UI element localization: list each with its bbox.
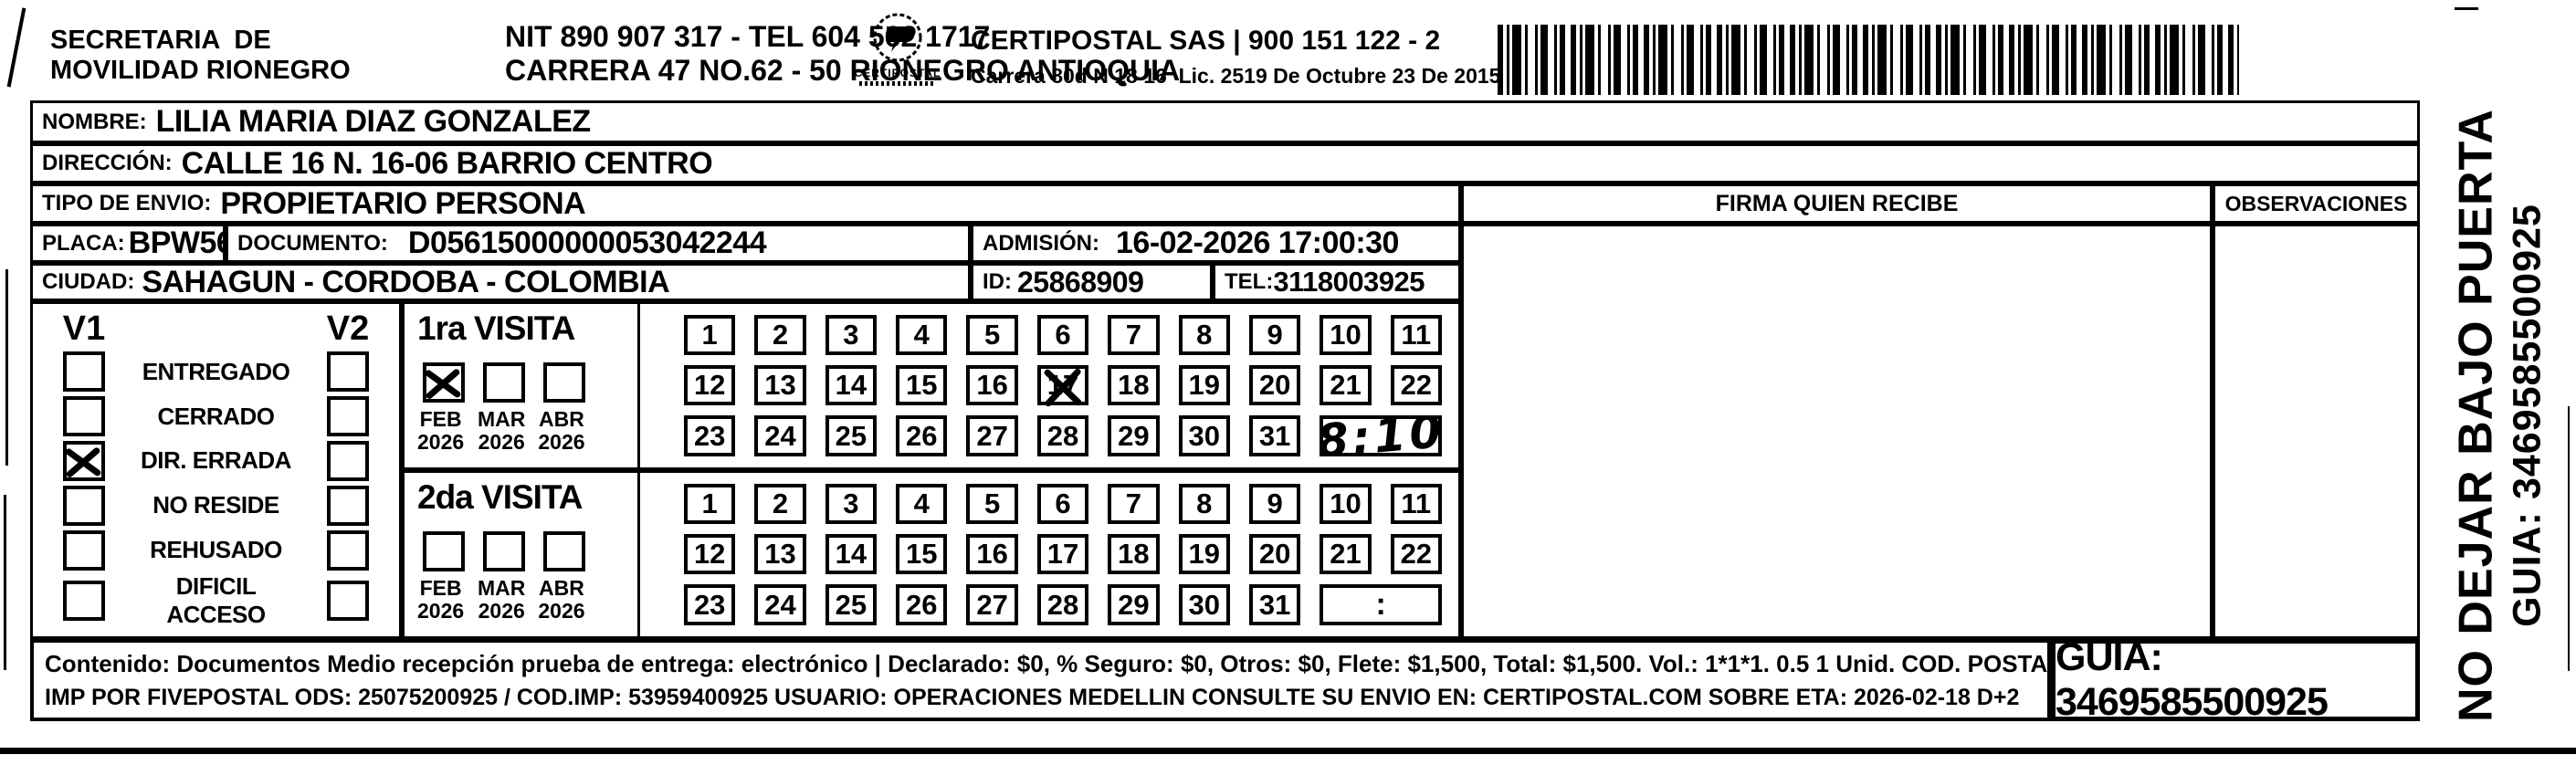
observaciones-header-label: OBSERVACIONES xyxy=(2225,192,2408,216)
month-label-feb-2026: FEB2026 xyxy=(417,577,464,623)
checkbox-month-abr-2026 xyxy=(543,362,585,403)
day-cell-3: 3 xyxy=(825,484,877,524)
day-cell-8: 8 xyxy=(1179,484,1230,524)
scan-mark-left-2 xyxy=(4,495,6,670)
tipo-envio-label: TIPO DE ENVIO: xyxy=(42,191,211,216)
firma-signature-area xyxy=(1461,224,2213,639)
day-cell-31: 31 xyxy=(1249,584,1300,625)
checkbox-v1-no-reside xyxy=(63,486,105,526)
month-year: 2026 xyxy=(417,600,464,623)
documento-value: D05615000000053042244 xyxy=(408,225,766,261)
ciudad-cell: CIUDAD: SAHAGUN - CORDOBA - COLOMBIA xyxy=(30,263,971,301)
month-year: 2026 xyxy=(478,600,525,623)
ciudad-value: SAHAGUN - CORDOBA - COLOMBIA xyxy=(142,265,669,300)
day-cell-14: 14 xyxy=(825,365,877,405)
v1-checkbox-wrap xyxy=(42,581,126,621)
status-label-no-reside: NO RESIDE xyxy=(126,491,306,519)
day-cell-23: 23 xyxy=(684,584,735,625)
side-vertical-text: NO DEJAR BAJO PUERTA GUIA: 3469585500925 xyxy=(2422,100,2576,730)
day-cell-12: 12 xyxy=(684,534,735,574)
month-option-abr-2026: ABR2026 xyxy=(538,531,585,623)
second-visit-title: 2da VISITA xyxy=(417,478,637,517)
handwritten-time-value: 8:10 xyxy=(1320,415,1442,456)
day-cell-9: 9 xyxy=(1249,484,1300,524)
day-cell-24: 24 xyxy=(754,584,805,625)
day-cell-8: 8 xyxy=(1179,315,1230,355)
documento-cell: DOCUMENTO: D05615000000053042244 xyxy=(226,224,971,263)
logo-tagline-squiggle xyxy=(859,81,936,86)
status-option-dir-errada: DIR. ERRADA xyxy=(42,439,390,484)
day-cell-20: 20 xyxy=(1249,534,1300,574)
day-cell-2: 2 xyxy=(754,484,805,524)
day-cell-22: 22 xyxy=(1391,534,1442,574)
day-cell-7: 7 xyxy=(1108,315,1159,355)
day-cell-4: 4 xyxy=(896,315,947,355)
checkbox-v1-dificil-acceso xyxy=(63,581,105,621)
first-visit-months: FEB2026MAR2026ABR2026 xyxy=(417,362,637,454)
checkbox-month-mar-2026 xyxy=(483,531,525,571)
guia-box-value: GUIA: 3469585500925 xyxy=(2056,639,2415,721)
day-cell-5: 5 xyxy=(966,484,1017,524)
second-visit-day-grid: 1234567891011121314151617181920212223242… xyxy=(640,473,1458,636)
v1-checkbox-wrap xyxy=(42,486,126,526)
no-dejar-warning: NO DEJAR BAJO PUERTA xyxy=(2448,109,2503,722)
sender-block: SECRETARIA DE MOVILIDAD RIONEGRO xyxy=(50,26,351,86)
sender-line-2: MOVILIDAD RIONEGRO xyxy=(50,56,351,86)
checkbox-v2-dir-errada xyxy=(327,441,369,481)
certipostal-logo-icon xyxy=(869,11,926,66)
v1-checkbox-wrap xyxy=(42,530,126,571)
day-cell-22: 22 xyxy=(1391,365,1442,405)
month-name: MAR xyxy=(478,577,525,600)
month-year: 2026 xyxy=(417,431,464,454)
status-option-entregado: ENTREGADO xyxy=(42,350,390,394)
contenido-cell: Contenido: Documentos Medio recepción pr… xyxy=(30,639,2051,721)
status-header-row: V1 V2 xyxy=(42,308,390,350)
checkbox-v1-cerrado xyxy=(63,396,105,436)
day-cell-27: 27 xyxy=(966,415,1017,456)
nombre-row: NOMBRE: LILIA MARIA DIAZ GONZALEZ xyxy=(30,100,2420,143)
month-year: 2026 xyxy=(478,431,525,454)
status-option-rehusado: REHUSADO xyxy=(42,528,390,572)
second-visit-months: FEB2026MAR2026ABR2026 xyxy=(417,531,637,623)
day-cell-2: 2 xyxy=(754,315,805,355)
day-cell-16: 16 xyxy=(966,534,1017,574)
checkbox-v1-entregado xyxy=(63,351,105,392)
checkbox-month-feb-2026 xyxy=(423,362,465,403)
checkbox-month-feb-2026 xyxy=(423,531,465,571)
checkbox-v2-no-reside xyxy=(327,486,369,526)
day-cell-26: 26 xyxy=(896,415,947,456)
month-option-feb-2026: FEB2026 xyxy=(417,362,465,454)
checkbox-month-abr-2026 xyxy=(543,531,585,571)
scan-mark-topright xyxy=(2455,7,2478,10)
observaciones-area xyxy=(2213,224,2420,639)
delivery-status-panel: V1 V2 ENTREGADOCERRADODIR. ERRADANO RESI… xyxy=(30,301,402,639)
status-option-cerrado: CERRADO xyxy=(42,394,390,439)
day-cell-27: 27 xyxy=(966,584,1017,625)
checkbox-v1-rehusado xyxy=(63,530,105,571)
admision-cell: ADMISIÓN: 16-02-2026 17:00:30 xyxy=(971,224,1461,263)
day-cell-13: 13 xyxy=(754,534,805,574)
v2-checkbox-wrap xyxy=(306,441,390,481)
status-option-dificil-acceso: DIFICIL ACCESO xyxy=(42,572,390,629)
v2-checkbox-wrap xyxy=(306,486,390,526)
first-visit-day-grid: 1234567891011121314151617181920212223242… xyxy=(640,304,1458,467)
status-option-no-reside: NO RESIDE xyxy=(42,483,390,528)
v2-column-label: V2 xyxy=(306,309,390,349)
company-block: CERTIPOSTAL SAS | 900 151 122 - 2 Carrer… xyxy=(971,26,1500,89)
time-placeholder: : xyxy=(1375,587,1385,623)
day-cell-21: 21 xyxy=(1320,534,1371,574)
day-cell-1: 1 xyxy=(684,484,735,524)
first-visit-month-section: 1ra VISITA FEB2026MAR2026ABR2026 xyxy=(405,304,640,467)
day-cell-21: 21 xyxy=(1320,365,1371,405)
day-cell-6: 6 xyxy=(1037,484,1088,524)
first-visit-title: 1ra VISITA xyxy=(417,309,637,348)
day-cell-7: 7 xyxy=(1108,484,1159,524)
day-cell-11: 11 xyxy=(1391,484,1442,524)
tipo-envio-value: PROPIETARIO PERSONA xyxy=(220,186,585,222)
day-cell-25: 25 xyxy=(825,415,877,456)
day-cell-6: 6 xyxy=(1037,315,1088,355)
day-cell-17: 17 xyxy=(1037,534,1088,574)
admision-label: ADMISIÓN: xyxy=(983,231,1099,257)
month-label-abr-2026: ABR2026 xyxy=(538,577,584,623)
logo-name: CERTIPOSTAL xyxy=(847,67,948,79)
month-label-abr-2026: ABR2026 xyxy=(538,408,584,454)
day-cell-29: 29 xyxy=(1108,584,1159,625)
admision-value: 16-02-2026 17:00:30 xyxy=(1116,225,1399,261)
month-option-abr-2026: ABR2026 xyxy=(538,362,585,454)
month-name: FEB xyxy=(417,408,464,431)
visit-time-box: 8:10 xyxy=(1320,415,1442,456)
day-cell-11: 11 xyxy=(1391,315,1442,355)
day-cell-18: 18 xyxy=(1108,365,1159,405)
day-cell-1: 1 xyxy=(684,315,735,355)
day-cell-13: 13 xyxy=(754,365,805,405)
side-guia-number: GUIA: 3469585500925 xyxy=(2505,204,2550,627)
month-name: ABR xyxy=(538,408,584,431)
tel-cell: TEL: 3118003925 xyxy=(1213,263,1461,301)
documento-label: DOCUMENTO: xyxy=(237,231,388,257)
visit-time-box: : xyxy=(1320,584,1442,625)
month-label-feb-2026: FEB2026 xyxy=(417,408,464,454)
nombre-value: LILIA MARIA DIAZ GONZALEZ xyxy=(156,104,591,140)
v1-checkbox-wrap xyxy=(42,396,126,436)
direccion-row: DIRECCIÓN: CALLE 16 N. 16-06 BARRIO CENT… xyxy=(30,143,2420,183)
checkbox-v1-dir-errada xyxy=(63,441,105,481)
direccion-value: CALLE 16 N. 16-06 BARRIO CENTRO xyxy=(182,146,713,182)
day-cell-12: 12 xyxy=(684,365,735,405)
imp-line: IMP POR FIVEPOSTAL ODS: 25075200925 / CO… xyxy=(45,685,2019,711)
month-option-mar-2026: MAR2026 xyxy=(478,362,525,454)
scan-mark-left-1 xyxy=(5,269,8,466)
second-visit-month-section: 2da VISITA FEB2026MAR2026ABR2026 xyxy=(405,473,640,636)
v2-checkbox-wrap xyxy=(306,351,390,392)
status-label-cerrado: CERRADO xyxy=(126,403,306,431)
status-label-dificil-acceso: DIFICIL ACCESO xyxy=(126,572,306,629)
day-cell-29: 29 xyxy=(1108,415,1159,456)
month-option-mar-2026: MAR2026 xyxy=(478,531,525,623)
day-cell-30: 30 xyxy=(1179,584,1230,625)
day-cell-24: 24 xyxy=(754,415,805,456)
day-cell-15: 15 xyxy=(896,534,947,574)
day-cell-19: 19 xyxy=(1179,534,1230,574)
checkbox-month-mar-2026 xyxy=(483,362,525,403)
month-label-mar-2026: MAR2026 xyxy=(478,577,525,623)
firma-header-label: FIRMA QUIEN RECIBE xyxy=(1716,191,1959,217)
day-cell-10: 10 xyxy=(1320,484,1371,524)
id-value: 25868909 xyxy=(1017,266,1143,299)
checkbox-v2-entregado xyxy=(327,351,369,392)
day-cell-23: 23 xyxy=(684,415,735,456)
status-label-rehusado: REHUSADO xyxy=(126,536,306,564)
second-visit-panel: 2da VISITA FEB2026MAR2026ABR2026 1234567… xyxy=(402,470,1461,639)
month-name: FEB xyxy=(417,577,464,600)
v1-checkbox-wrap xyxy=(42,351,126,392)
day-cell-4: 4 xyxy=(896,484,947,524)
scan-mark-topleft xyxy=(7,7,26,87)
month-name: MAR xyxy=(478,408,525,431)
v2-checkbox-wrap xyxy=(306,581,390,621)
month-name: ABR xyxy=(538,577,584,600)
month-year: 2026 xyxy=(538,431,584,454)
ciudad-label: CIUDAD: xyxy=(42,269,134,295)
day-cell-15: 15 xyxy=(896,365,947,405)
day-cell-18: 18 xyxy=(1108,534,1159,574)
day-cell-3: 3 xyxy=(825,315,877,355)
checkbox-v2-cerrado xyxy=(327,396,369,436)
placa-cell: PLACA: BPW560 xyxy=(30,224,226,263)
certipostal-logo: CERTIPOSTAL xyxy=(847,11,948,86)
placa-label: PLACA: xyxy=(42,231,125,257)
sender-line-1: SECRETARIA DE xyxy=(50,26,351,56)
day-cell-31: 31 xyxy=(1249,415,1300,456)
v2-checkbox-wrap xyxy=(306,396,390,436)
tracking-barcode xyxy=(1498,25,2239,95)
day-cell-17-crossed: 17 xyxy=(1037,365,1088,405)
side-vertical-inner: NO DEJAR BAJO PUERTA GUIA: 3469585500925 xyxy=(2424,100,2574,730)
day-cell-20: 20 xyxy=(1249,365,1300,405)
day-cell-9: 9 xyxy=(1249,315,1300,355)
direccion-label: DIRECCIÓN: xyxy=(42,151,173,176)
day-cell-16: 16 xyxy=(966,365,1017,405)
day-cell-28: 28 xyxy=(1037,415,1088,456)
day-cell-25: 25 xyxy=(825,584,877,625)
day-cell-26: 26 xyxy=(896,584,947,625)
day-cell-19: 19 xyxy=(1179,365,1230,405)
month-option-feb-2026: FEB2026 xyxy=(417,531,465,623)
firma-header-cell: FIRMA QUIEN RECIBE xyxy=(1461,183,2213,224)
tipo-envio-cell: TIPO DE ENVIO: PROPIETARIO PERSONA xyxy=(30,183,1461,224)
month-label-mar-2026: MAR2026 xyxy=(478,408,525,454)
checkbox-v2-dificil-acceso xyxy=(327,581,369,621)
day-cell-14: 14 xyxy=(825,534,877,574)
status-label-entregado: ENTREGADO xyxy=(126,358,306,386)
tel-value: 3118003925 xyxy=(1273,266,1425,299)
v1-column-label: V1 xyxy=(42,309,126,349)
month-year: 2026 xyxy=(538,600,584,623)
checkbox-v2-rehusado xyxy=(327,530,369,571)
company-line: CERTIPOSTAL SAS | 900 151 122 - 2 xyxy=(971,26,1500,57)
status-label-dir-errada: DIR. ERRADA xyxy=(126,446,306,475)
day-cell-10: 10 xyxy=(1320,315,1371,355)
id-cell: ID: 25868909 xyxy=(971,263,1213,301)
scan-mark-bottom xyxy=(0,748,2576,754)
day-cell-5: 5 xyxy=(966,315,1017,355)
id-label: ID: xyxy=(983,269,1012,295)
v2-checkbox-wrap xyxy=(306,530,390,571)
license-line: Carrera 80d N 18 16 Lic. 2519 De Octubre… xyxy=(971,64,1500,89)
contenido-line: Contenido: Documentos Medio recepción pr… xyxy=(45,650,2051,678)
day-cell-30: 30 xyxy=(1179,415,1230,456)
first-visit-panel: 1ra VISITA FEB2026MAR2026ABR2026 1234567… xyxy=(402,301,1461,470)
v1-checkbox-wrap xyxy=(42,441,126,481)
placa-value: BPW560 xyxy=(129,225,226,261)
tel-label: TEL: xyxy=(1225,269,1273,295)
nombre-label: NOMBRE: xyxy=(42,110,147,135)
day-cell-28: 28 xyxy=(1037,584,1088,625)
observaciones-header-cell: OBSERVACIONES xyxy=(2213,183,2420,224)
guia-box: GUIA: 3469585500925 xyxy=(2051,639,2420,721)
